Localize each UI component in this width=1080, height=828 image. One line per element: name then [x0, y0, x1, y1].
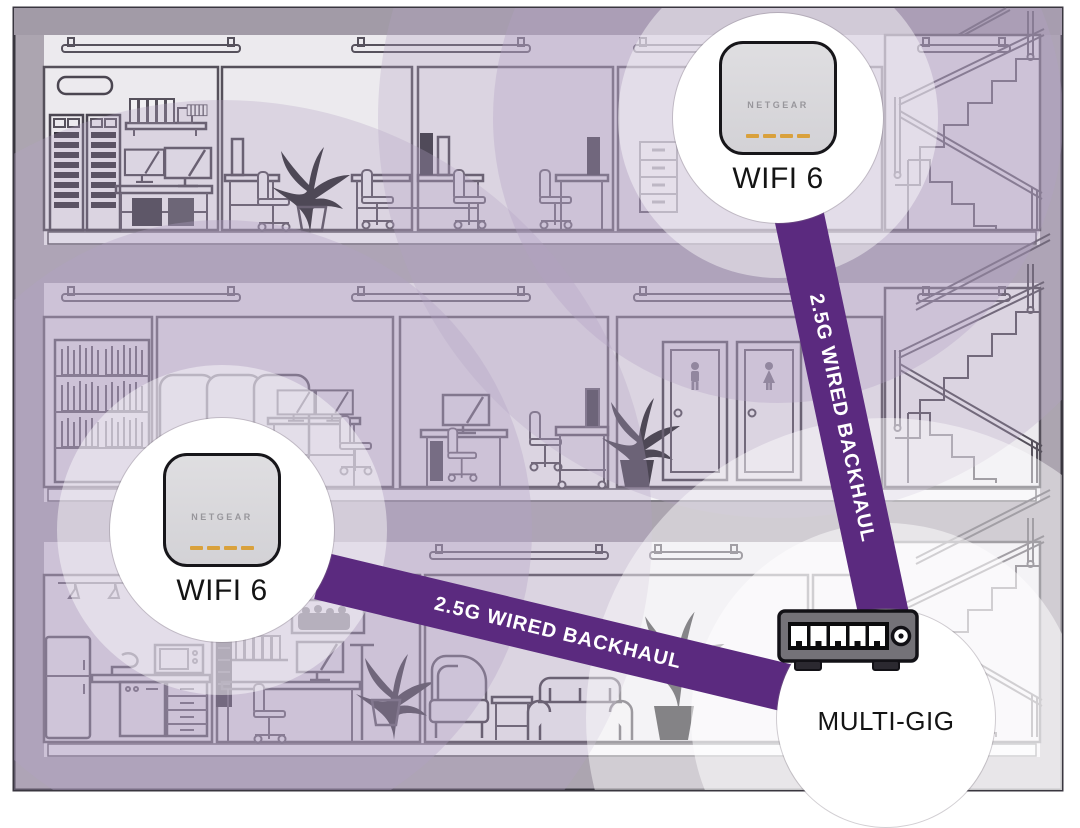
- couch: [528, 678, 632, 740]
- ap-top-label: WIFI 6: [732, 162, 823, 196]
- diagram-canvas: 2.5G WIRED BACKHAUL 2.5G WIRED BACKHAUL …: [0, 0, 1080, 828]
- switch-circle: MULTI-GIG: [777, 609, 995, 827]
- led-indicators: [166, 546, 278, 550]
- ap-top-circle: NETGEAR WIFI 6: [673, 13, 883, 223]
- access-point-device: NETGEAR: [719, 41, 837, 155]
- netgear-logo: NETGEAR: [722, 100, 834, 110]
- roof-slab: [14, 8, 1062, 35]
- access-point-device: NETGEAR: [163, 453, 281, 567]
- netgear-logo: NETGEAR: [166, 512, 278, 522]
- fridge: [46, 637, 90, 738]
- ap-left-label: WIFI 6: [176, 574, 267, 608]
- filing-cabinet: [640, 142, 677, 212]
- switch-label: MULTI-GIG: [818, 706, 955, 737]
- ap-left-circle: NETGEAR WIFI 6: [110, 418, 334, 642]
- led-indicators: [722, 134, 834, 138]
- multigig-switch-device: [777, 609, 919, 673]
